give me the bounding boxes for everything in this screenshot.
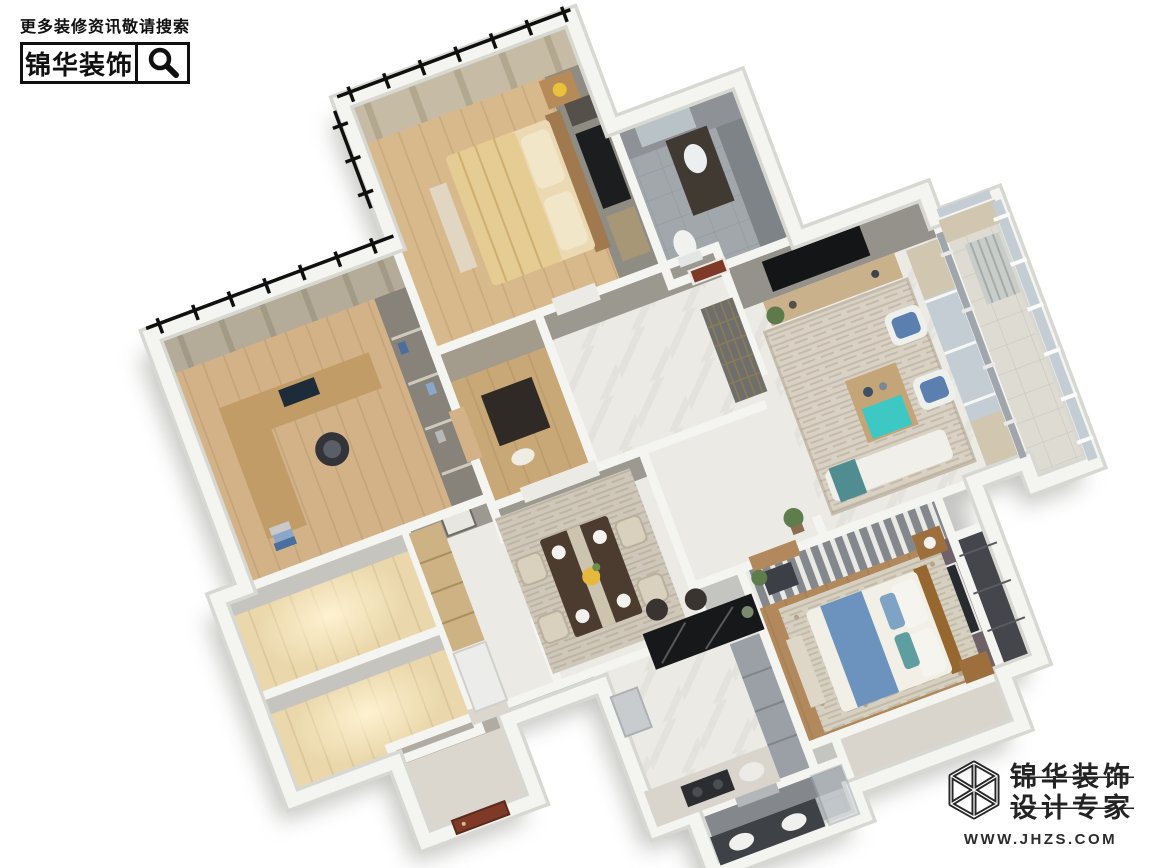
brand-name: 锦华装饰 [23,45,135,81]
brand-search-box: 锦华装饰 [20,42,190,84]
cube-wireframe-icon [947,759,1001,826]
promo-image: 更多装修资讯敬请搜索 锦华装饰 [0,0,1158,868]
footer-brand-line2: 设计专家 [1010,793,1134,824]
footer-logo: 锦华装饰 设计专家 WWW.JHZS.COM [947,759,1134,848]
footer-brand-line1: 锦华装饰 [1010,762,1134,793]
search-tagline: 更多装修资讯敬请搜索 [20,13,190,37]
magnifier-icon [138,45,187,81]
header-watermark: 更多装修资讯敬请搜索 锦华装饰 [20,13,190,84]
floorplan-render [0,0,1158,868]
footer-url: WWW.JHZS.COM [964,831,1117,848]
